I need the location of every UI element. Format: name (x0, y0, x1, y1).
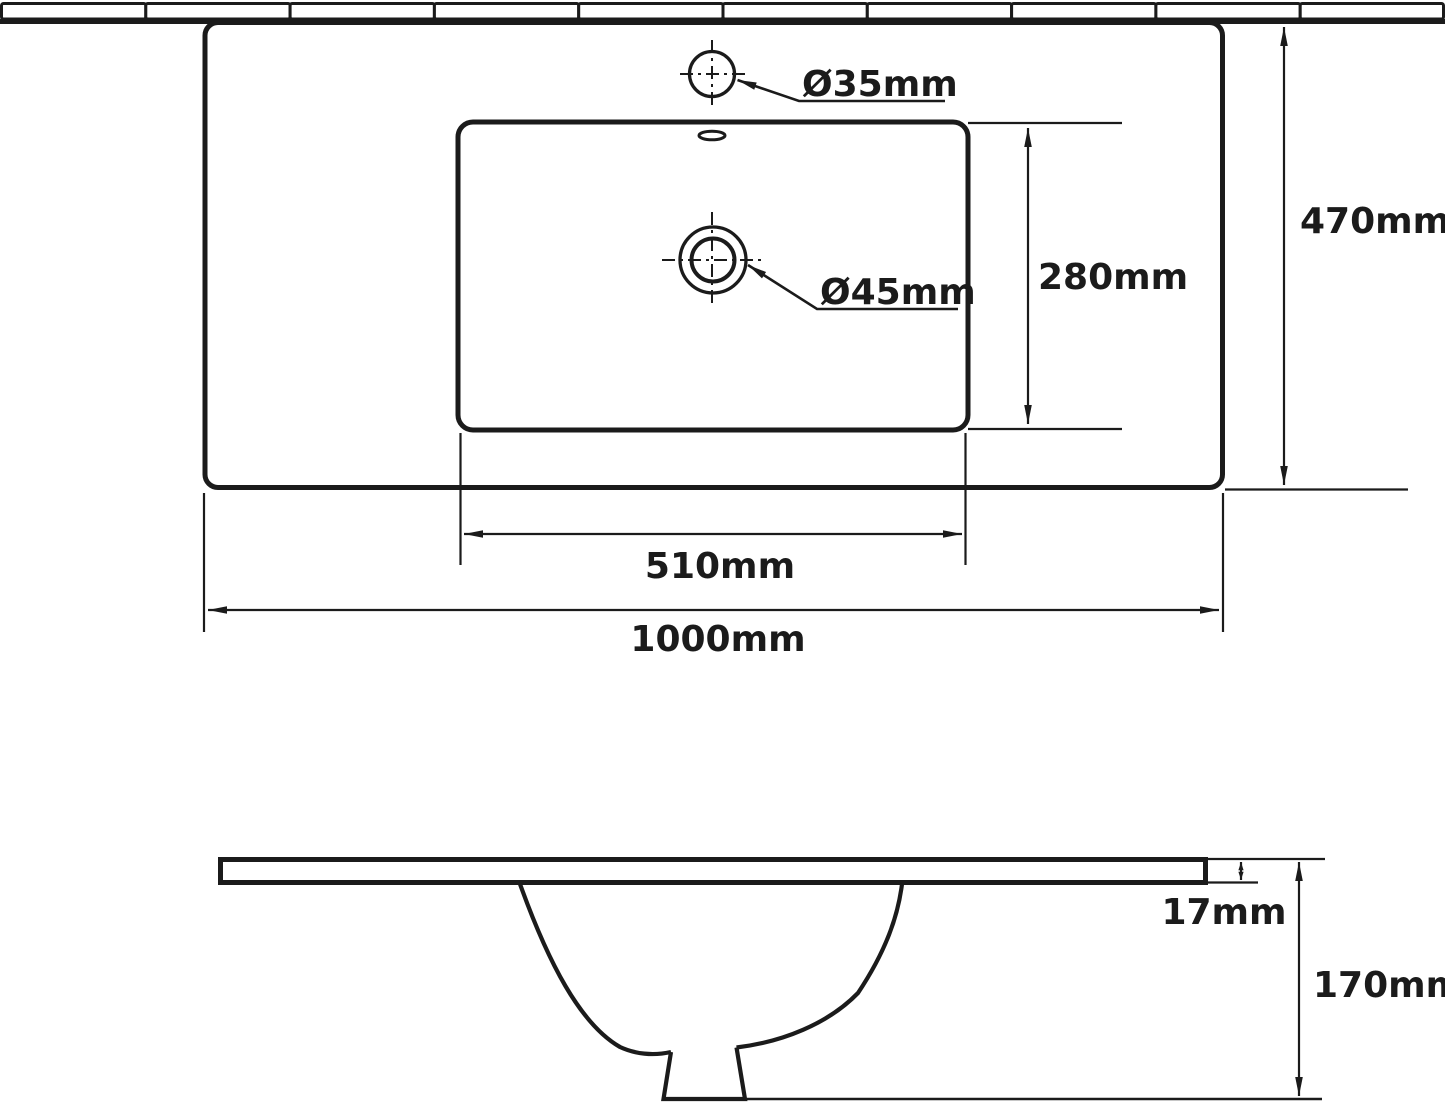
basin-depth-label: 470mm (1300, 201, 1445, 242)
wall-tile (2, 4, 146, 20)
wall-tile (1156, 4, 1300, 20)
side-view-countertop (221, 860, 1206, 883)
overall-height-label: 170mm (1313, 965, 1445, 1006)
side-view-bowl-right-wall (737, 884, 903, 1048)
wall-tile (290, 4, 434, 20)
side-view-bowl-left-wall (520, 884, 671, 1054)
wall-tile-strip (2, 4, 1444, 20)
bowl-width-label: 510mm (645, 546, 795, 587)
overflow-slot (699, 131, 725, 140)
washbasin-dimension-drawing: Ø35mm Ø45mm 280mm 470mm 510mm 1000mm 17m… (0, 0, 1445, 1113)
wall-tile (1012, 4, 1156, 20)
side-view-drain-stub (664, 1048, 746, 1100)
drain-diameter-label: Ø45mm (820, 272, 976, 313)
wall-tile (723, 4, 867, 20)
wall-tile (579, 4, 723, 20)
bowl-depth-label: 280mm (1038, 257, 1188, 298)
basin-width-label: 1000mm (630, 619, 805, 660)
wall-tile (867, 4, 1011, 20)
rim-thickness-label: 17mm (1161, 892, 1286, 933)
wall-tile (434, 4, 578, 20)
wall-tile (1300, 4, 1443, 20)
technical-drawing-canvas: Ø35mm Ø45mm 280mm 470mm 510mm 1000mm 17m… (0, 0, 1445, 1113)
faucet-diameter-label: Ø35mm (802, 64, 958, 105)
wall-tile (146, 4, 290, 20)
